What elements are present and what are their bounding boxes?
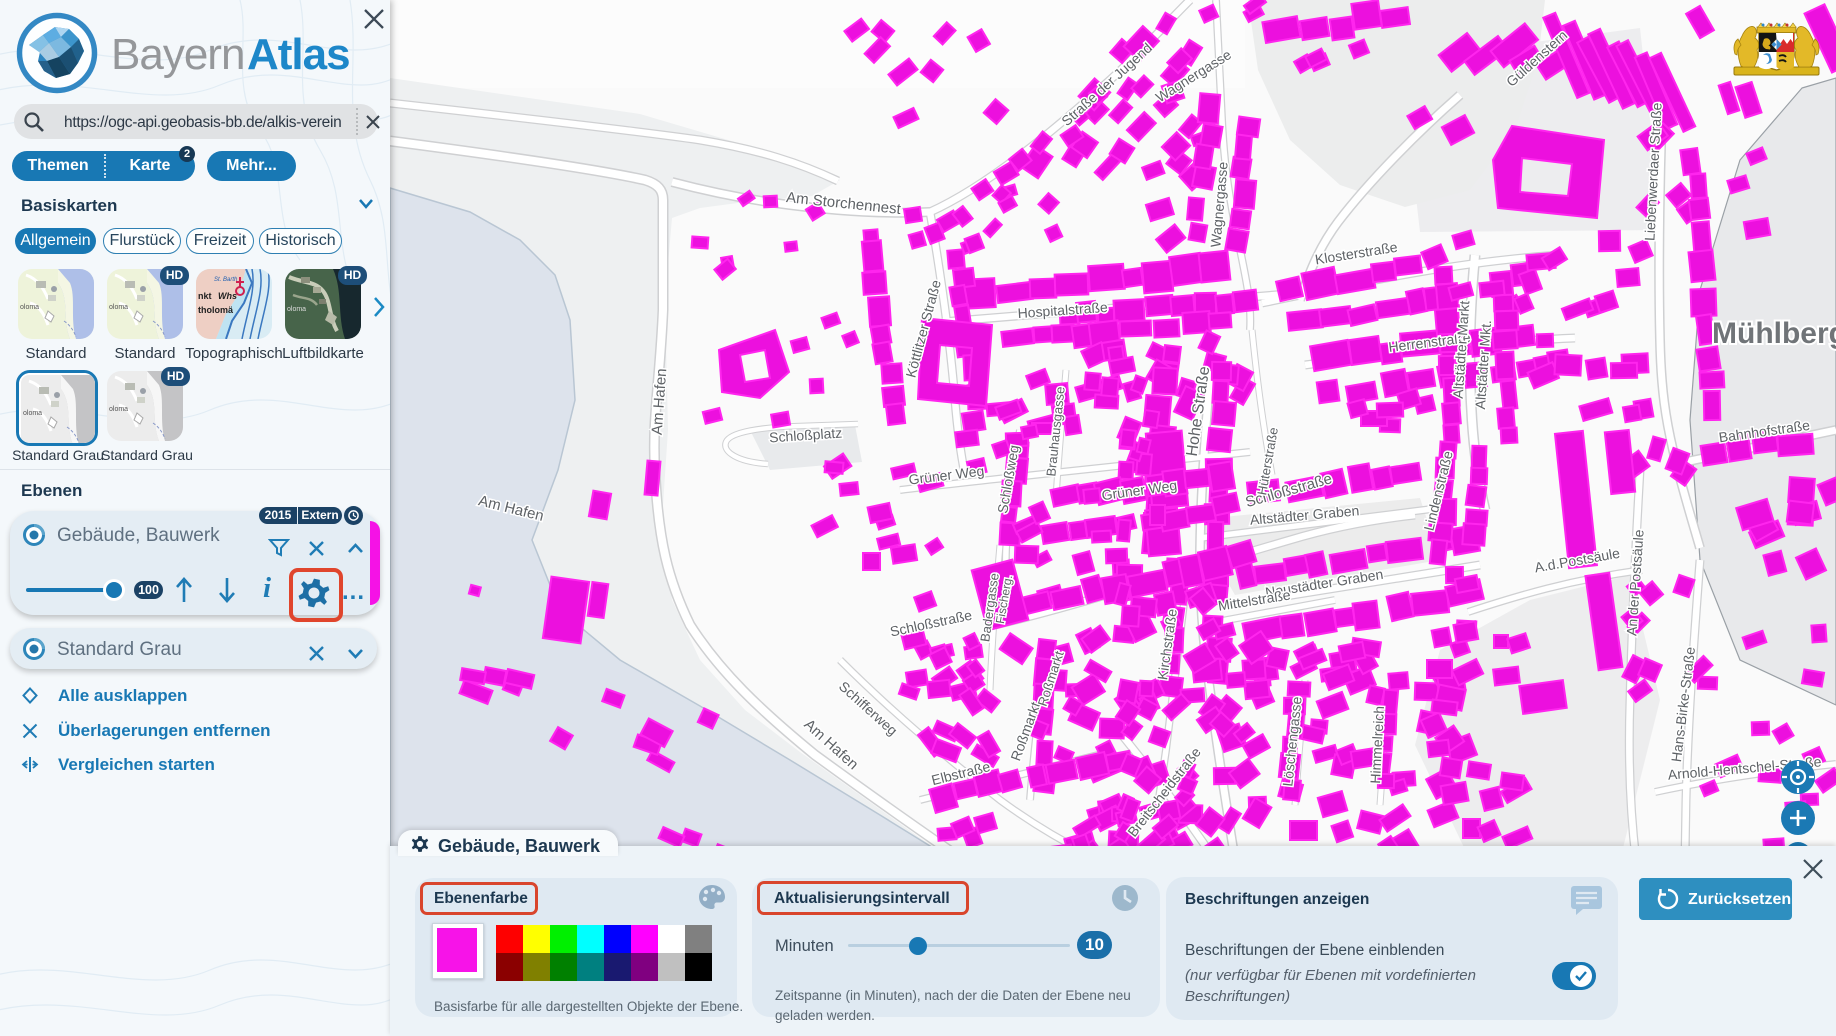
- svg-text:oloma: oloma: [23, 410, 42, 417]
- svg-text:Bayern: Bayern: [111, 30, 244, 79]
- svg-text:Whs: Whs: [218, 291, 237, 301]
- svg-text:oloma: oloma: [109, 304, 128, 311]
- svg-text:nkt: nkt: [198, 291, 212, 301]
- svg-text:St. Barth: St. Barth: [214, 277, 238, 283]
- svg-text:oloma: oloma: [20, 304, 39, 311]
- svg-text:Atlas: Atlas: [247, 30, 350, 79]
- svg-text:oloma: oloma: [109, 406, 128, 413]
- svg-text:Mühlberg: Mühlberg: [1712, 317, 1836, 350]
- svg-text:oloma: oloma: [287, 306, 306, 313]
- svg-text:tholomä: tholomä: [198, 305, 234, 315]
